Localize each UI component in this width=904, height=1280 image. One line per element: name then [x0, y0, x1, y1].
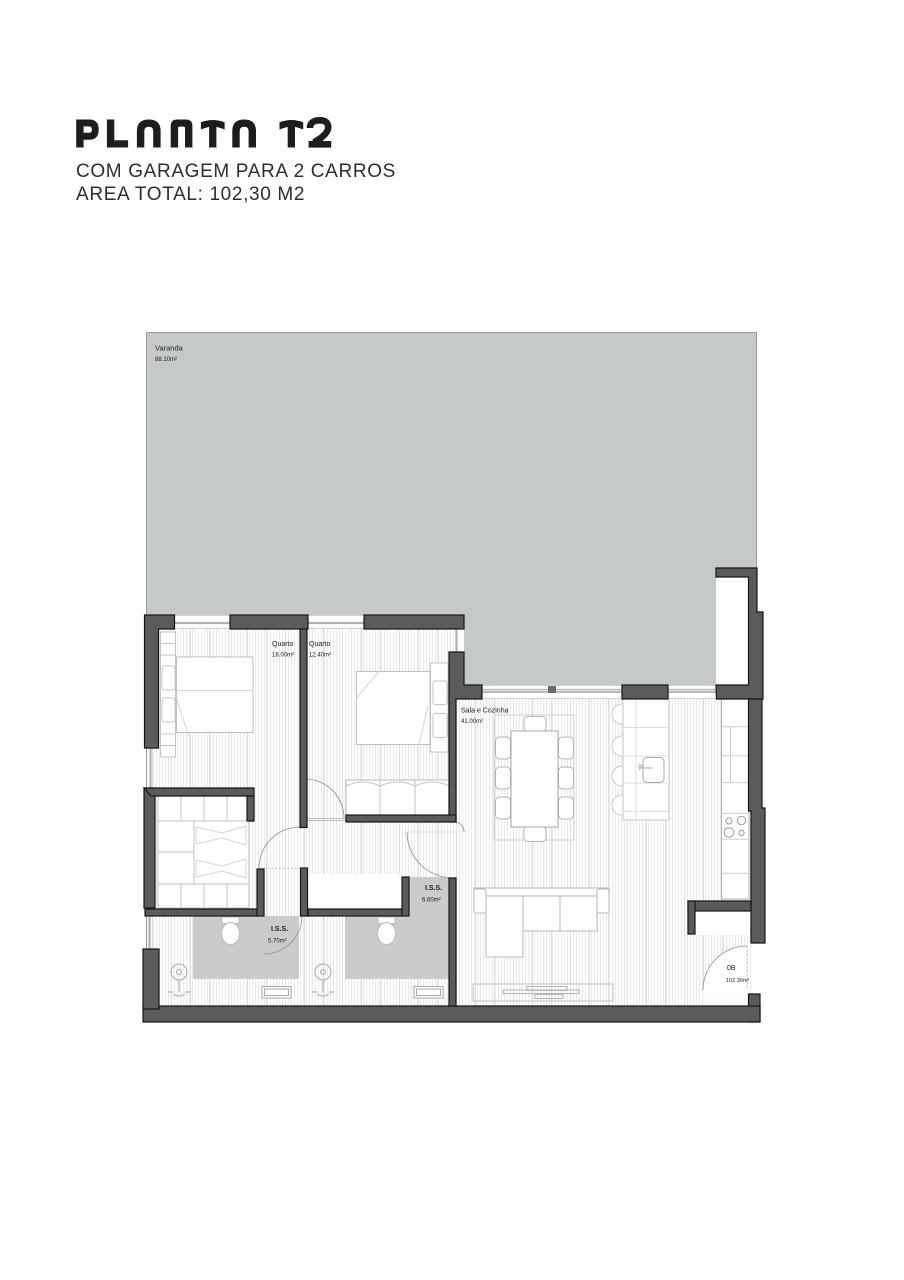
- svg-text:12.40m²: 12.40m²: [309, 653, 331, 659]
- svg-text:5.70m²: 5.70m²: [268, 939, 287, 945]
- svg-text:18.00m²: 18.00m²: [272, 653, 294, 659]
- svg-text:88.10m²: 88.10m²: [155, 357, 177, 363]
- svg-text:I.S.S.: I.S.S.: [271, 926, 288, 933]
- svg-text:Sala e Cozinha: Sala e Cozinha: [461, 708, 509, 715]
- svg-text:I.S.S.: I.S.S.: [425, 885, 442, 892]
- svg-text:41.00m²: 41.00m²: [461, 719, 483, 725]
- svg-text:Varanda: Varanda: [155, 344, 184, 353]
- svg-text:Quarto: Quarto: [309, 641, 331, 648]
- svg-text:Quarto: Quarto: [272, 641, 294, 648]
- svg-text:0B: 0B: [727, 965, 736, 972]
- svg-text:6.60m²: 6.60m²: [422, 898, 441, 904]
- svg-text:102.30m²: 102.30m²: [726, 978, 749, 984]
